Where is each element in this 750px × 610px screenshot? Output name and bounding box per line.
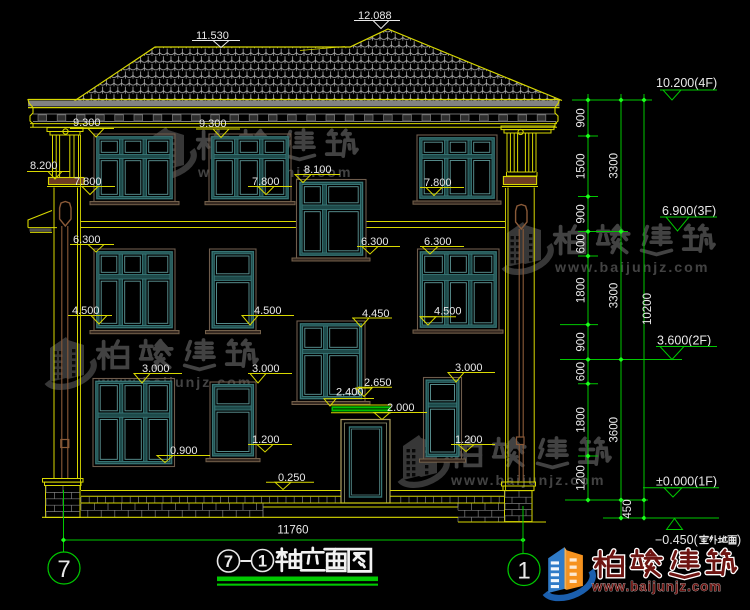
svg-text:9.300: 9.300 (73, 117, 101, 129)
svg-text:10.200(4F): 10.200(4F) (656, 76, 717, 90)
svg-text:3300: 3300 (609, 283, 621, 309)
svg-text:900: 900 (576, 332, 588, 351)
svg-text:2.400: 2.400 (336, 387, 364, 399)
svg-text:1: 1 (258, 553, 267, 571)
svg-text:): ) (737, 533, 741, 547)
svg-text:−0.450(: −0.450( (655, 533, 699, 547)
svg-text:3.600(2F): 3.600(2F) (657, 334, 711, 348)
svg-text:900: 900 (576, 204, 588, 223)
svg-text:1: 1 (517, 558, 530, 585)
svg-text:450: 450 (622, 499, 634, 518)
svg-text:6.900(3F): 6.900(3F) (662, 204, 716, 218)
svg-text:7: 7 (224, 553, 233, 571)
svg-text:1500: 1500 (576, 154, 588, 180)
svg-text:www.baijunjz.com: www.baijunjz.com (591, 579, 722, 594)
svg-text:1800: 1800 (576, 407, 588, 433)
svg-text:8.200: 8.200 (30, 160, 58, 172)
svg-text:www.baijunjz.com: www.baijunjz.com (554, 260, 709, 276)
svg-text:600: 600 (576, 362, 588, 381)
svg-text:1200: 1200 (576, 465, 588, 491)
svg-text:3300: 3300 (609, 153, 621, 179)
svg-text:11760: 11760 (277, 525, 308, 537)
svg-text:9.300: 9.300 (199, 118, 227, 130)
svg-text:900: 900 (576, 108, 588, 127)
svg-text:±0.000(1F): ±0.000(1F) (656, 475, 717, 489)
svg-text:600: 600 (576, 234, 588, 253)
svg-text:4.500: 4.500 (434, 306, 462, 318)
svg-text:10200: 10200 (642, 293, 654, 325)
svg-text:7: 7 (57, 556, 70, 583)
svg-text:3600: 3600 (609, 417, 621, 443)
svg-text:1800: 1800 (576, 278, 588, 304)
